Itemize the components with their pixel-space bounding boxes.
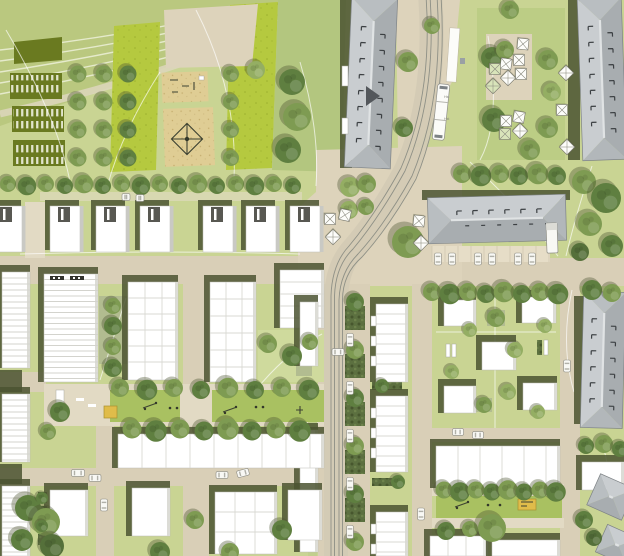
site-plan-svg: Hst Hst xyxy=(0,0,624,556)
pavilion-icon xyxy=(513,54,525,66)
rowhouse-slab xyxy=(0,387,30,462)
residential-building xyxy=(204,275,256,382)
sandbox xyxy=(518,499,536,510)
pavilion-icon xyxy=(516,37,529,50)
car-icon xyxy=(347,430,354,443)
car-icon xyxy=(347,526,354,539)
car-icon xyxy=(101,499,108,511)
house-building xyxy=(135,200,174,252)
car-icon xyxy=(332,349,344,356)
car-icon xyxy=(449,253,456,265)
pavilion-icon xyxy=(512,109,526,123)
house-building xyxy=(91,200,130,252)
playground-sand xyxy=(163,107,215,167)
house-building xyxy=(285,200,324,252)
pavilion-icon xyxy=(556,104,568,116)
masterplan-map: Hst Hst xyxy=(0,0,624,556)
allotment-gardens xyxy=(13,108,63,130)
pavilion-icon xyxy=(500,115,512,127)
house-building xyxy=(0,200,26,252)
car-icon xyxy=(453,429,464,436)
car-icon xyxy=(347,382,354,395)
pavilion-icon xyxy=(499,128,511,140)
pavilion-icon xyxy=(499,57,513,71)
apartment-slab xyxy=(38,267,98,382)
house-building xyxy=(198,200,237,252)
car-icon xyxy=(473,432,484,439)
house-building xyxy=(241,200,280,252)
ticket-machine-icon xyxy=(460,58,465,64)
balcony-slab xyxy=(370,505,408,556)
car-icon xyxy=(89,475,101,482)
allotment-gardens xyxy=(14,142,64,164)
truck-icon xyxy=(546,223,558,253)
car-icon xyxy=(515,253,522,265)
car-icon xyxy=(347,334,354,347)
car-icon xyxy=(475,253,482,265)
house-building xyxy=(45,200,84,252)
car-icon xyxy=(347,478,354,491)
sandbox xyxy=(104,406,117,418)
street-vertical-v1 xyxy=(96,424,114,556)
residential-building xyxy=(122,275,178,380)
residential-building xyxy=(209,485,277,554)
gable-building-east xyxy=(580,291,624,428)
tram-stop-label: Hst xyxy=(444,95,449,99)
rowhouse-slab xyxy=(0,265,30,368)
car-icon xyxy=(136,195,144,202)
balcony-slab xyxy=(370,389,408,472)
car-icon xyxy=(489,253,496,265)
residential-building xyxy=(126,481,170,536)
car-icon xyxy=(529,253,536,265)
car-icon xyxy=(435,253,442,265)
vivid-field xyxy=(110,22,160,172)
pavilion-icon xyxy=(324,213,336,225)
pavilion-icon xyxy=(515,68,527,80)
car-icon xyxy=(418,508,425,520)
pavilion-icon xyxy=(489,63,501,75)
pavilion-icon xyxy=(412,214,425,227)
car-icon xyxy=(122,194,130,201)
gable-building-northeast xyxy=(577,0,624,161)
pavilion-icon xyxy=(337,207,351,221)
gable-building-center xyxy=(427,194,566,244)
car-icon xyxy=(72,470,85,477)
balcony-slab xyxy=(370,297,408,382)
car-icon xyxy=(216,472,228,479)
car-icon xyxy=(564,360,571,372)
tram-stop-label: Hst xyxy=(444,117,449,121)
gable-building-north xyxy=(344,0,397,169)
residential-building xyxy=(438,379,476,413)
park-plaza xyxy=(164,4,258,68)
